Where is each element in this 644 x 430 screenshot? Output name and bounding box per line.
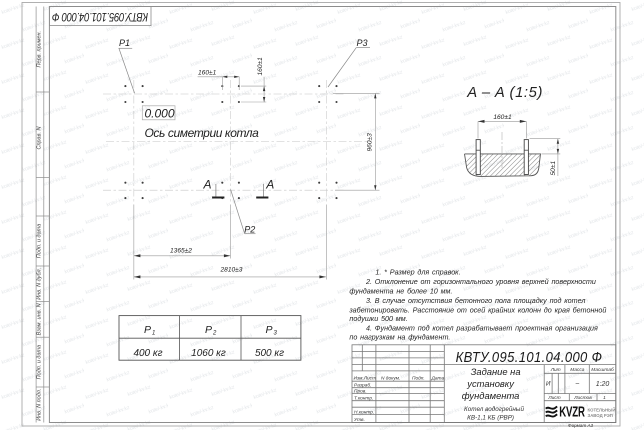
svg-text:P3: P3: [357, 38, 368, 48]
svg-text:Формат А3: Формат А3: [568, 423, 594, 428]
svg-text:ЗАВОД РЭП: ЗАВОД РЭП: [588, 413, 613, 418]
svg-text:4. Фундамент под котел разраба: 4. Фундамент под котел разрабатывает про…: [366, 324, 598, 333]
svg-text:Масса: Масса: [570, 367, 585, 373]
svg-text:1: 1: [152, 331, 155, 337]
svg-text:Ось симетрии котла: Ось симетрии котла: [145, 126, 260, 140]
svg-text:Дата: Дата: [431, 375, 445, 381]
svg-text:500 кг: 500 кг: [255, 348, 284, 359]
svg-text:P: P: [144, 324, 151, 336]
svg-text:1. * Размер для справок.: 1. * Размер для справок.: [375, 268, 460, 277]
svg-text:1365±2: 1365±2: [170, 247, 192, 254]
svg-text:Утв.: Утв.: [354, 417, 365, 423]
svg-text:Справ. N: Справ. N: [36, 126, 42, 149]
svg-text:Лист: Лист: [547, 395, 560, 401]
svg-text:A – A (1:5): A – A (1:5): [466, 85, 543, 101]
svg-text:Котел водогрейный: Котел водогрейный: [464, 405, 524, 413]
svg-text:A: A: [265, 178, 274, 192]
svg-text:КВ-1,1 КБ (РВР): КВ-1,1 КБ (РВР): [467, 415, 514, 422]
svg-text:фундамента: фундамента: [462, 390, 520, 401]
svg-text:160±1: 160±1: [257, 57, 264, 76]
svg-text:50±1: 50±1: [550, 161, 557, 176]
svg-text:Листов: Листов: [573, 395, 592, 401]
svg-text:КОТЕЛЬНЫЙ: КОТЕЛЬНЫЙ: [588, 407, 616, 412]
svg-text:0.000: 0.000: [145, 107, 175, 121]
svg-text:P1: P1: [119, 38, 130, 48]
svg-text:подушки 500 мм.: подушки 500 мм.: [349, 314, 407, 323]
svg-text:960±3: 960±3: [367, 133, 374, 152]
svg-text:по нагрузкам на фундамент.: по нагрузкам на фундамент.: [349, 333, 450, 342]
svg-text:1:20: 1:20: [596, 381, 610, 388]
svg-text:Инв. N подл.: Инв. N подл.: [36, 389, 42, 421]
svg-text:КВТУ.095.101.04.000 Ф: КВТУ.095.101.04.000 Ф: [456, 348, 603, 365]
svg-text:Н.контр.: Н.контр.: [354, 410, 374, 416]
svg-text:400 кг: 400 кг: [133, 348, 162, 359]
svg-text:И: И: [546, 381, 551, 388]
svg-text:KVZR: KVZR: [559, 404, 585, 421]
svg-text:установку: установку: [466, 378, 515, 389]
svg-text:Разраб.: Разраб.: [354, 383, 371, 389]
svg-text:Масштаб: Масштаб: [591, 367, 614, 373]
svg-text:Лит: Лит: [550, 367, 561, 373]
svg-text:забетонировать. Расстояние от: забетонировать. Расстояние от осей крайн…: [348, 305, 606, 314]
svg-text:1: 1: [603, 395, 606, 401]
svg-text:P: P: [205, 324, 212, 336]
svg-text:Подп.: Подп.: [412, 375, 425, 381]
svg-text:P: P: [266, 324, 273, 336]
svg-text:КВТУ.095.101.04.000 Ф: КВТУ.095.101.04.000 Ф: [52, 9, 148, 22]
svg-text:Т.контр.: Т.контр.: [354, 396, 373, 402]
svg-text:Подп. и дата: Подп. и дата: [36, 345, 42, 379]
svg-text:P2: P2: [244, 225, 255, 235]
svg-text:Перв. примен.: Перв. примен.: [36, 31, 42, 68]
svg-text:–: –: [575, 381, 580, 388]
svg-text:N докум.: N докум.: [381, 375, 400, 381]
svg-text:Пров.: Пров.: [354, 389, 367, 395]
svg-text:160±1: 160±1: [493, 114, 512, 121]
svg-text:2: 2: [212, 331, 217, 337]
svg-text:Подп. и дата: Подп. и дата: [36, 224, 42, 258]
svg-text:фундамента не более 10 мм.: фундамента не более 10 мм.: [349, 286, 452, 295]
svg-text:Изм.Лист: Изм.Лист: [354, 375, 377, 381]
svg-text:1060 кг: 1060 кг: [191, 348, 226, 359]
svg-text:A: A: [203, 178, 212, 192]
svg-text:2810±3: 2810±3: [220, 267, 243, 274]
svg-text:160±1: 160±1: [198, 70, 217, 77]
svg-text:Инв. N дубл.: Инв. N дубл.: [36, 268, 42, 300]
svg-text:2. Отклонение от горизонтально: 2. Отклонение от горизонтального уровня …: [365, 277, 596, 286]
svg-text:3. В случае отсутствия бетонно: 3. В случае отсутствия бетонного пола пл…: [366, 296, 585, 305]
svg-text:Задание на: Задание на: [471, 366, 521, 377]
svg-text:Взам. инв. N: Взам. инв. N: [36, 303, 42, 335]
